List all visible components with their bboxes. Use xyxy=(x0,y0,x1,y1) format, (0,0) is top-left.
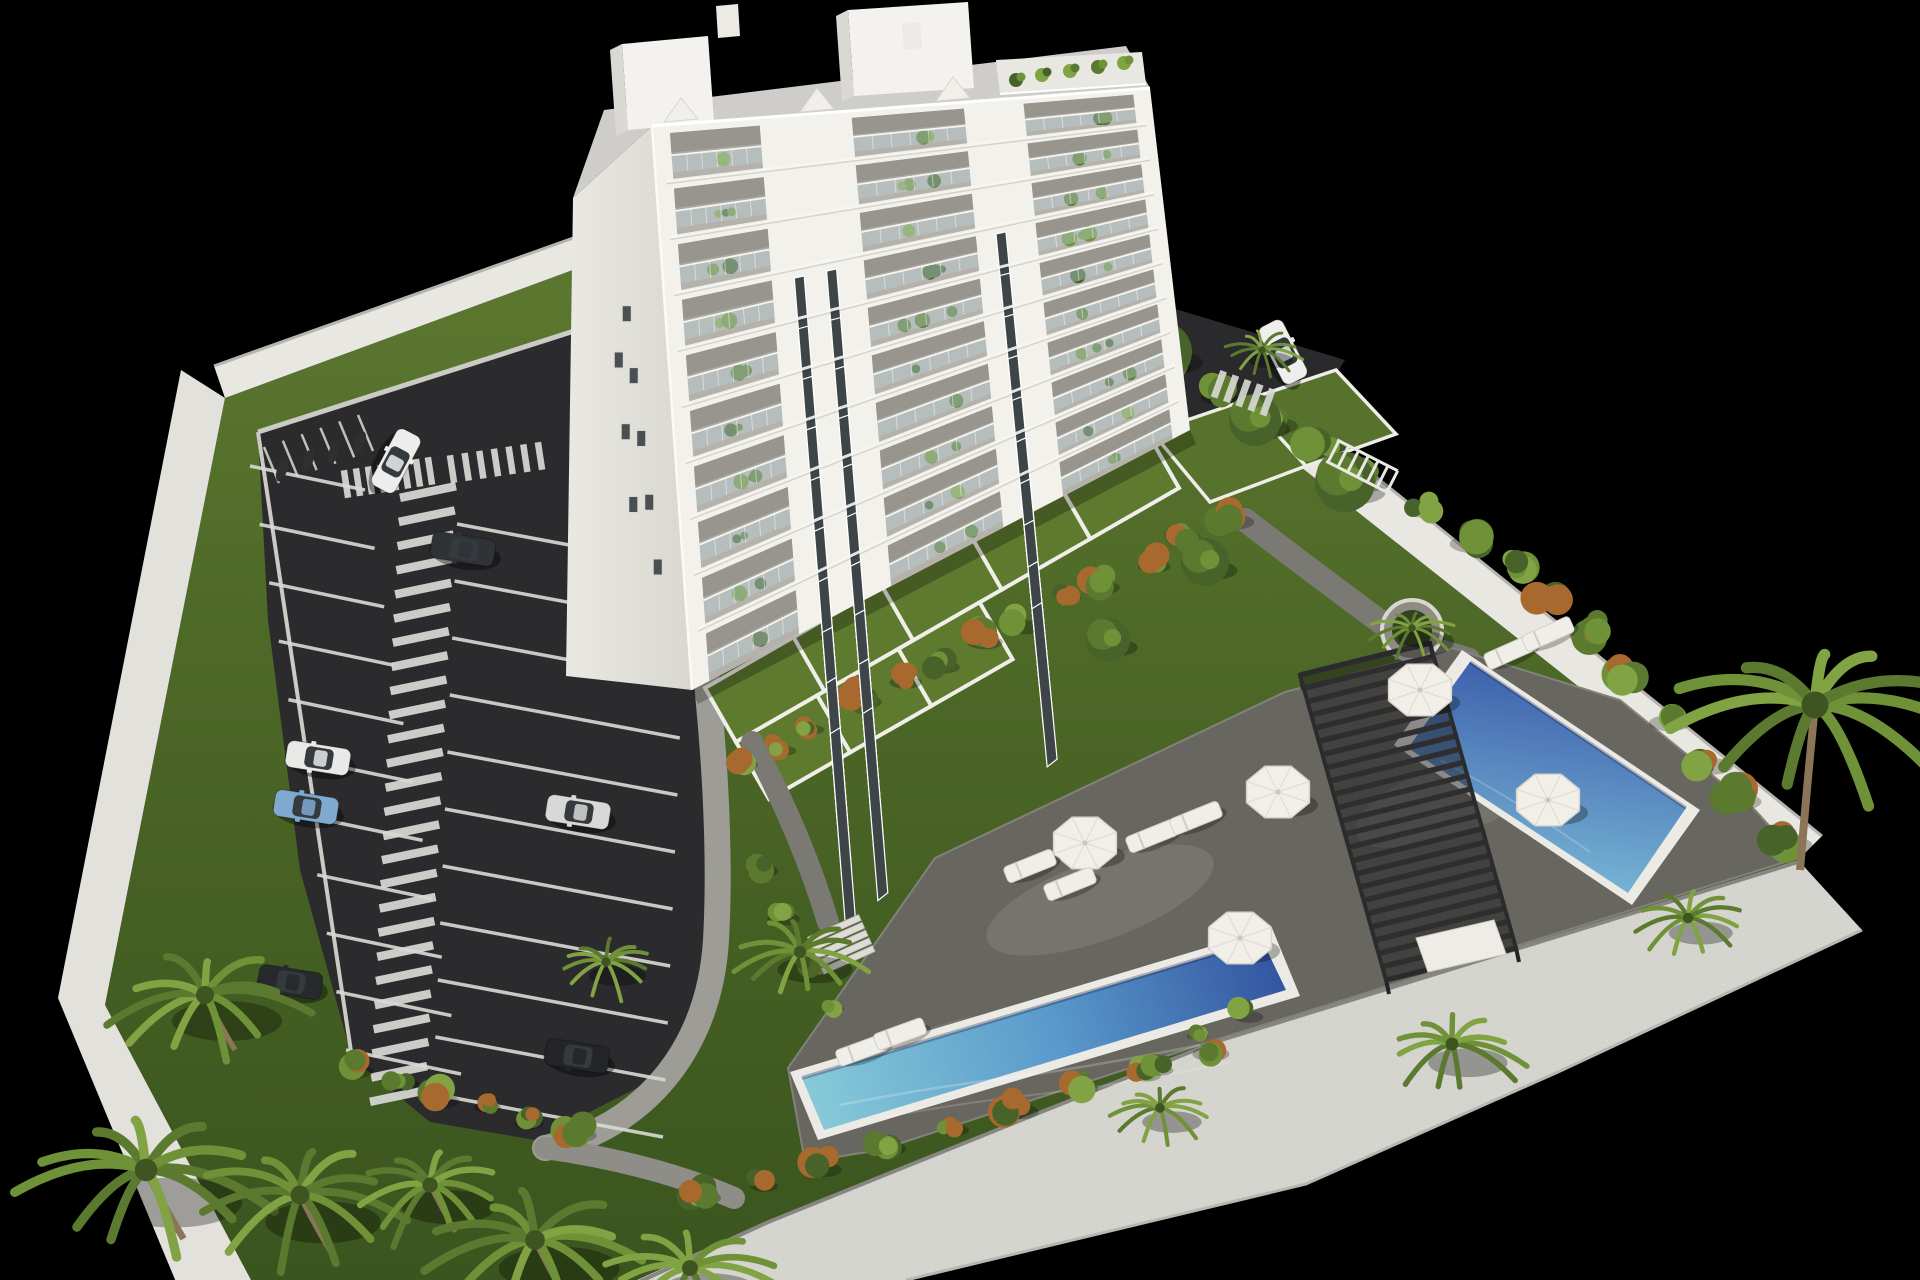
chimney xyxy=(902,22,922,50)
site-render xyxy=(0,0,1920,1280)
chimney xyxy=(716,4,740,38)
architectural-render xyxy=(0,0,1920,1280)
